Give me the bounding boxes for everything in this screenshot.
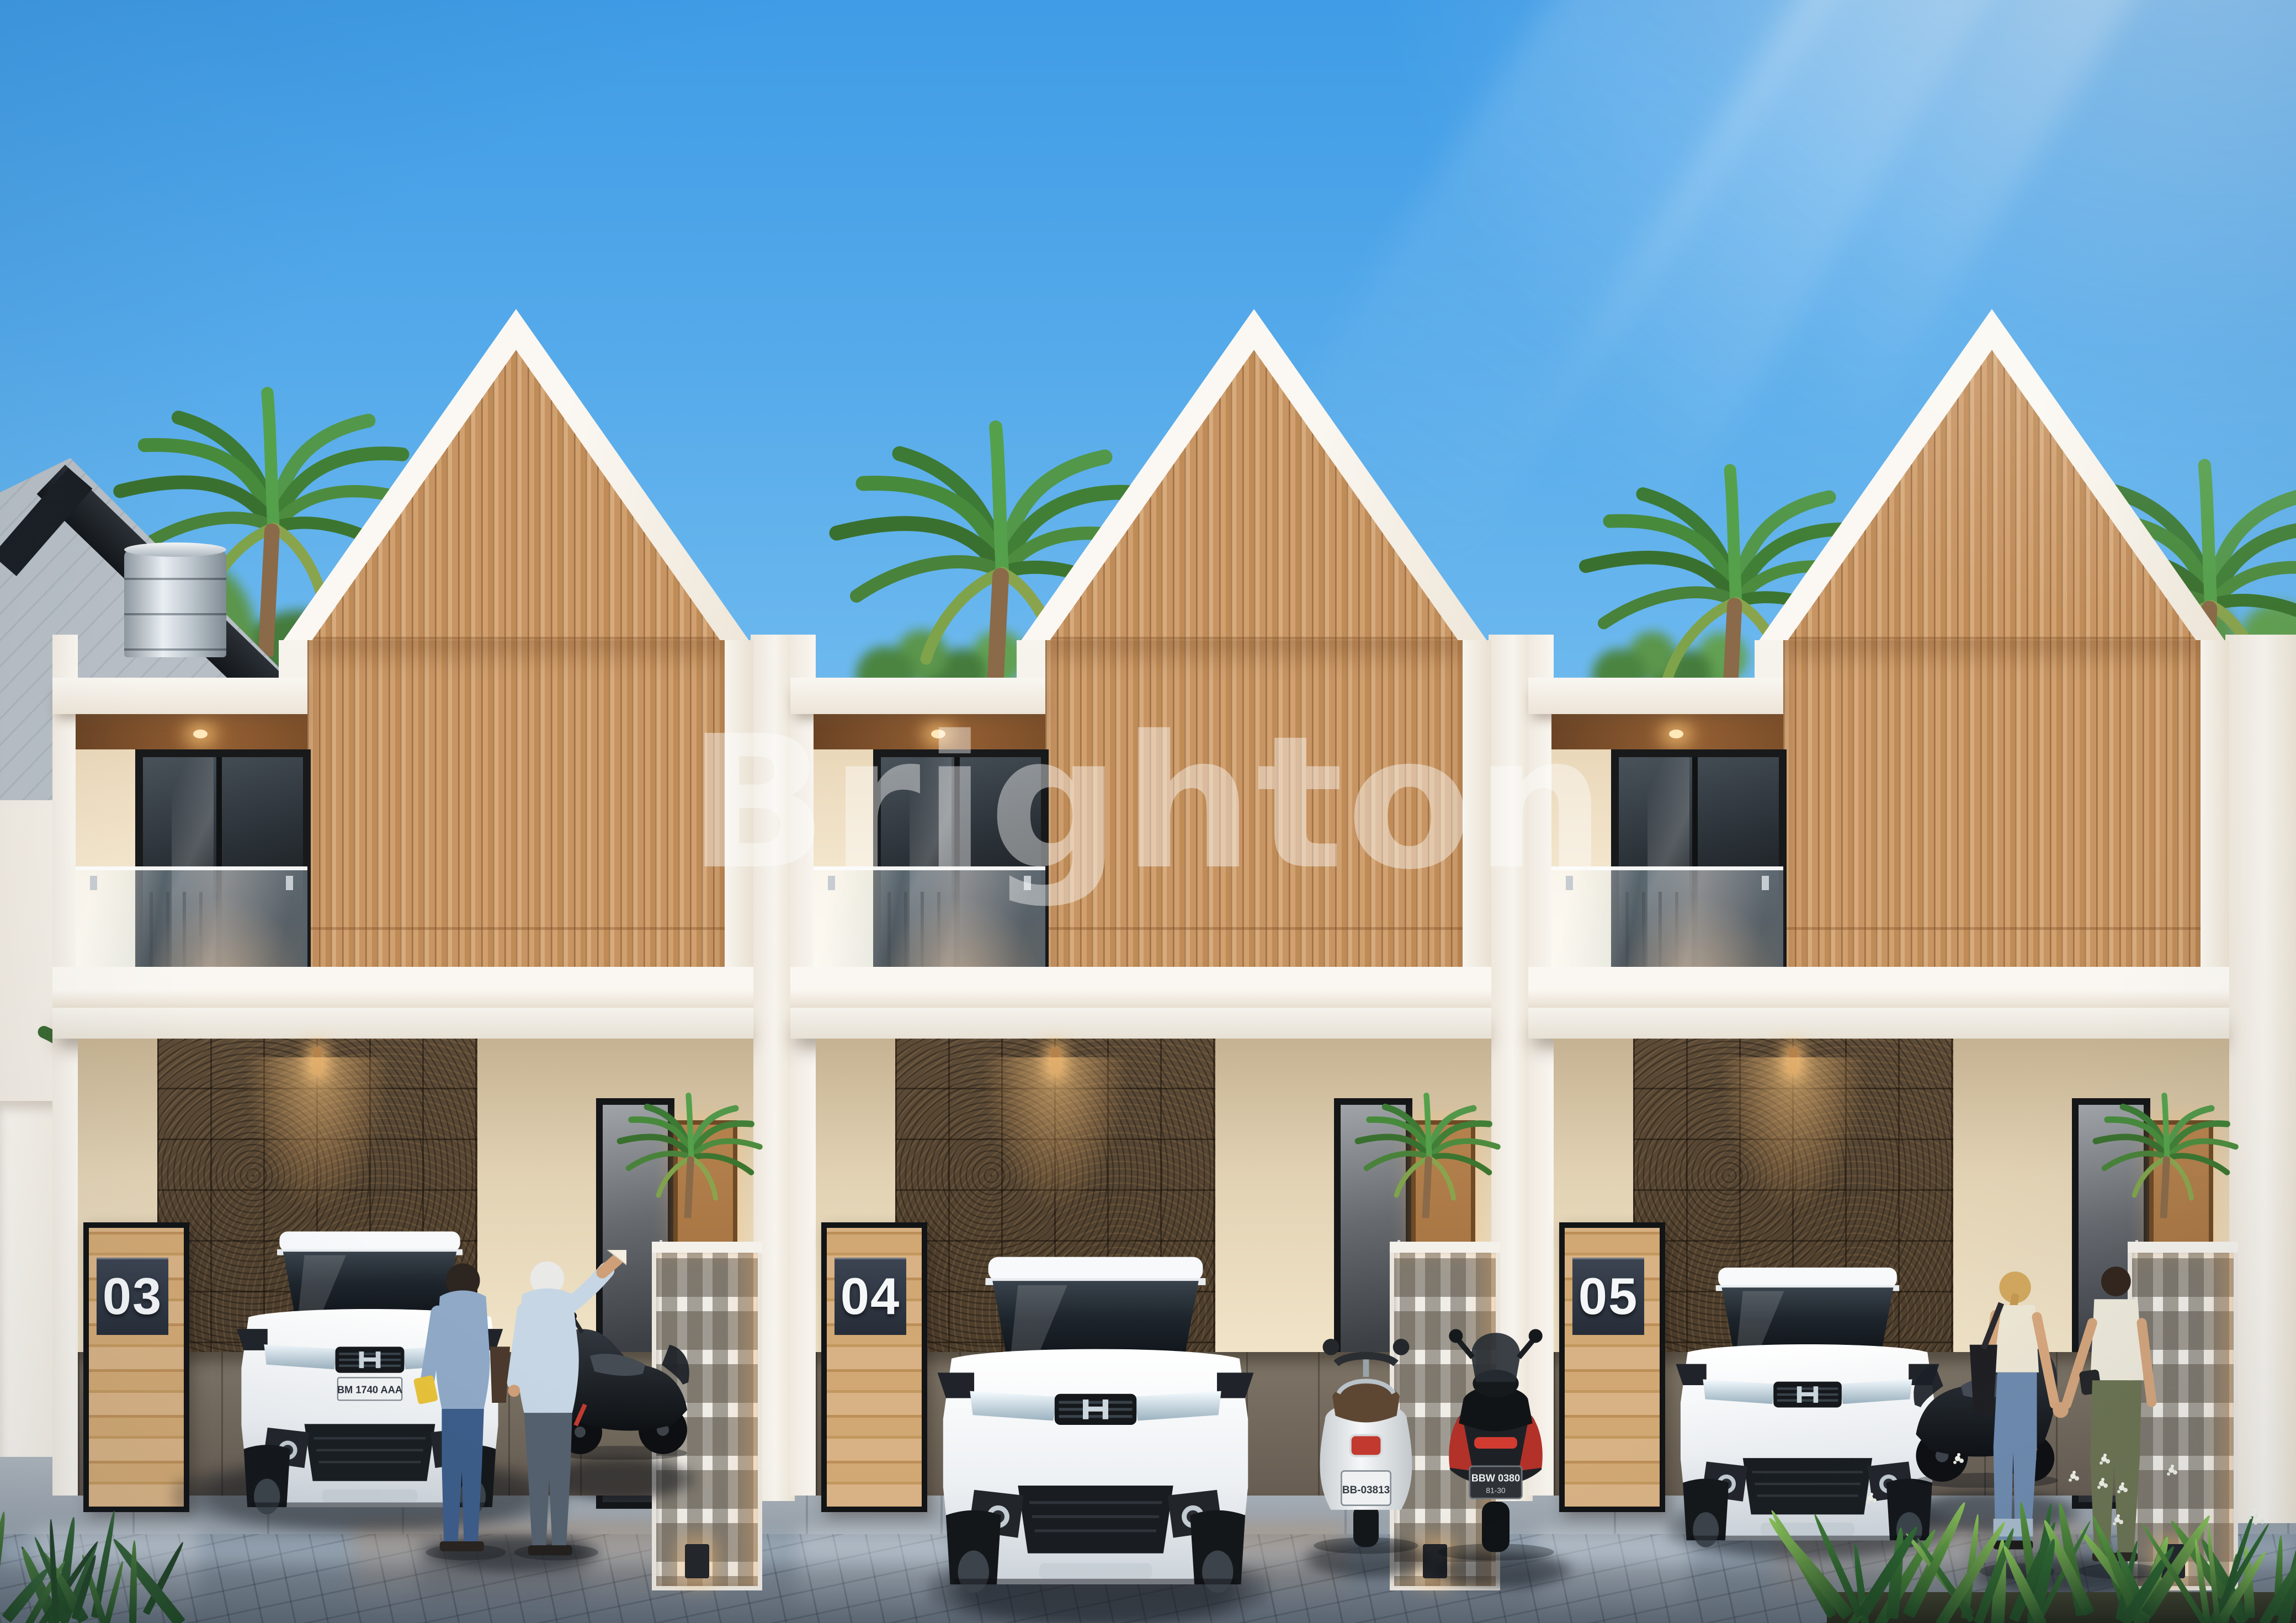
balcony-canopy — [790, 678, 1045, 714]
arm — [428, 1312, 438, 1379]
balcony-canopy — [52, 678, 307, 714]
glass-railing — [76, 866, 307, 978]
white-vespa: BB-03813 — [1303, 1308, 1429, 1573]
shoulder-bag — [1970, 1345, 1997, 1414]
glass-railing — [1551, 866, 1783, 978]
mirror — [1449, 1329, 1463, 1343]
hair — [2101, 1267, 2131, 1296]
white-flower — [2099, 1481, 2104, 1486]
house-number-plaque: 05 — [1572, 1258, 1644, 1335]
joined-hands — [2053, 1402, 2069, 1418]
tail-light — [1351, 1435, 1382, 1456]
upper-wood-wall — [1783, 640, 2201, 968]
house-number: 04 — [835, 1258, 906, 1335]
palm-shrub — [2080, 1035, 2251, 1273]
arm — [2037, 1317, 2055, 1404]
balcony-wood-ceiling — [76, 714, 307, 749]
party-wall — [52, 635, 78, 1496]
white-flower — [2169, 1467, 2174, 1473]
white-flower — [1955, 1456, 1960, 1461]
balcony-downlight — [931, 730, 945, 738]
floor-slab — [52, 967, 753, 1008]
arm — [514, 1311, 524, 1383]
arm — [2141, 1323, 2151, 1402]
balcony-downlight — [1669, 730, 1683, 738]
white-flower — [2101, 1456, 2107, 1462]
windscreen — [1471, 1333, 1521, 1382]
white-flower — [2256, 1516, 2261, 1522]
car-body — [938, 1257, 1254, 1593]
pergola-fascia — [52, 1008, 753, 1039]
white-honda-suv — [933, 1253, 1258, 1620]
balcony-wood-ceiling — [1551, 714, 1783, 749]
pergola-fascia — [790, 1008, 1491, 1039]
gate-number-pillar: 04 — [821, 1222, 927, 1512]
wall-pillar — [2201, 640, 2229, 968]
license-plate-text: BM 1740 AAA — [337, 1383, 402, 1395]
leaf-blade — [129, 1540, 137, 1623]
license-plate-subtext: 81-30 — [1486, 1486, 1506, 1495]
sunlight-glow — [1352, 0, 2296, 635]
leaf-blade — [0, 1511, 8, 1615]
elderly-man — [508, 1250, 626, 1555]
red-black-scooter: BBW 0380 81-30 — [1427, 1286, 1565, 1584]
elderly-woman — [413, 1263, 510, 1551]
palm-shrub — [604, 1035, 775, 1273]
pergola-fascia — [1528, 1008, 2229, 1039]
shoe — [460, 1541, 484, 1551]
trousers — [524, 1413, 572, 1545]
forearm — [602, 1259, 617, 1273]
balcony-canopy — [1528, 678, 1783, 714]
house-number: 03 — [97, 1258, 168, 1335]
wall-pillar — [1463, 640, 1491, 968]
floor-slab — [1528, 967, 2229, 1008]
mirror-stalk — [1519, 1339, 1534, 1357]
mirror — [1323, 1339, 1340, 1355]
balcony-wood-ceiling — [814, 714, 1045, 749]
shoulder-bag — [490, 1347, 510, 1403]
mirror — [1529, 1329, 1543, 1343]
mirror — [1393, 1339, 1410, 1355]
floor-slab — [790, 967, 1491, 1008]
house-number-plaque: 04 — [835, 1258, 906, 1335]
white-flower — [2250, 1511, 2256, 1516]
gable-wood-cladding — [307, 350, 725, 647]
glass-railing — [814, 866, 1045, 978]
leaf-blade — [104, 1561, 125, 1623]
rear-wheel — [1353, 1504, 1379, 1547]
hand — [508, 1385, 520, 1397]
party-wall — [790, 635, 816, 1496]
white-flower — [1868, 1496, 1873, 1501]
gate-number-pillar: 05 — [1559, 1222, 1665, 1512]
license-plate-text: BBW 0380 — [1471, 1473, 1520, 1484]
t-shirt — [2090, 1299, 2144, 1380]
corner-foliage — [0, 1468, 204, 1623]
bollard-light — [685, 1544, 709, 1578]
flower-planter — [1827, 1435, 2296, 1623]
license-plate-text: BB-03813 — [1342, 1484, 1390, 1496]
tail-light — [1474, 1437, 1517, 1449]
white-flower — [2070, 1473, 2076, 1479]
balcony-downlight — [193, 730, 208, 738]
rear-wheel — [1482, 1502, 1510, 1552]
house-number: 05 — [1572, 1258, 1644, 1335]
elderly-couple — [406, 1250, 626, 1562]
jeans — [442, 1409, 483, 1541]
shirt — [436, 1290, 490, 1409]
shoe — [548, 1545, 572, 1555]
white-flower — [2114, 1517, 2120, 1523]
house-number-plaque: 03 — [97, 1258, 168, 1335]
white-flower — [2119, 1485, 2124, 1491]
upper-wood-wall — [307, 640, 725, 968]
palm-shrub — [1342, 1035, 1513, 1273]
townhouse-render: 03 — [0, 0, 2296, 1623]
mirror-stalk — [1458, 1339, 1473, 1357]
upper-wood-wall — [1045, 640, 1463, 968]
wall-pillar — [725, 640, 753, 968]
